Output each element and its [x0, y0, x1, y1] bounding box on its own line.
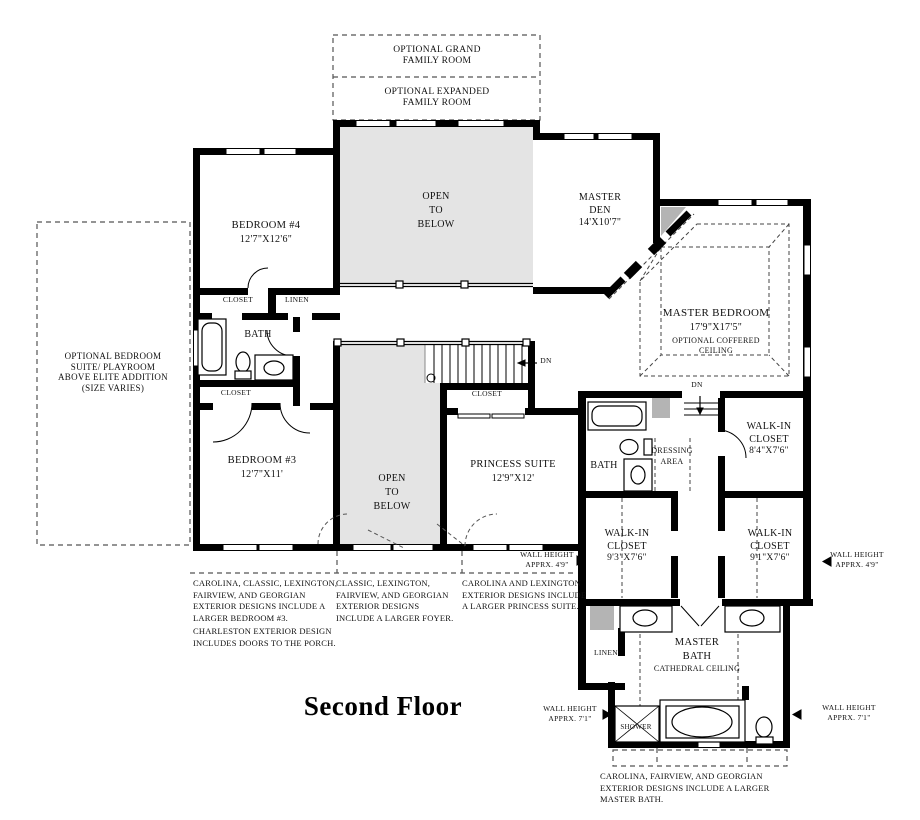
closet-label: CLOSET: [223, 296, 253, 305]
bedroom3-dims: 12'7"X11': [241, 469, 283, 481]
garden-tub-icon: [660, 700, 745, 742]
railing: [337, 284, 533, 345]
walkin-closet-dims: 9'3"X7'6": [607, 553, 647, 564]
hall-bath-label: BATH: [244, 329, 271, 341]
walkin-closet-label: WALK-IN CLOSET: [605, 527, 650, 553]
bedroom4-door-arc: [248, 268, 268, 288]
exterior-design-note: CAROLINA, FAIRVIEW, AND GEORGIAN EXTERIO…: [600, 771, 770, 806]
master-bath-label: MASTER BATH: [675, 636, 719, 664]
railing-posts: [334, 281, 530, 346]
dressing-area-label: DRESSING AREA: [651, 446, 693, 467]
optional-bedroom-suite-label: OPTIONAL BEDROOM SUITE/ PLAYROOM ABOVE E…: [58, 351, 168, 393]
exterior-design-note: CHARLESTON EXTERIOR DESIGN INCLUDES DOOR…: [193, 626, 336, 649]
master-bedroom-label: MASTER BEDROOM: [663, 307, 770, 320]
master-bath-door-leaf: [701, 606, 719, 626]
linen-top-shade: [590, 604, 614, 630]
princess-suite-dims: 12'9"X12': [492, 473, 535, 485]
bedroom3-label: BEDROOM #3: [228, 455, 297, 467]
dn-label: DN: [691, 381, 702, 390]
sink-vanity-icon: [255, 355, 293, 380]
optional-grand-family-room-label: OPTIONAL GRAND FAMILY ROOM: [393, 45, 481, 67]
optional-porch-door-arc: [465, 514, 497, 546]
sink-vanity-icon: [725, 606, 780, 632]
bedroom4-label: BEDROOM #4: [232, 220, 301, 232]
bedroom3-door-arc: [280, 403, 310, 433]
walkin-closet-dims: 8'4"X7'6": [749, 446, 789, 457]
page-title: Second Floor: [304, 691, 462, 722]
wall-height-note: WALL HEIGHT APPRX. 7'1": [543, 704, 597, 724]
bathtub-icon: [198, 319, 226, 375]
sink-vanity-icon: [624, 459, 652, 491]
floor-plan: OPTIONAL GRAND FAMILY ROOM OPTIONAL EXPA…: [0, 0, 920, 820]
walkin-closet-label: WALK-IN CLOSET: [748, 527, 793, 553]
wall-height-note: WALL HEIGHT APPRX. 4'9": [830, 550, 884, 570]
optional-master-bath-outline: [613, 750, 787, 766]
bedroom4-dims: 12'7"X12'6": [240, 234, 292, 246]
exterior-design-note: CAROLINA AND LEXINGTON EXTERIOR DESIGNS …: [462, 578, 586, 613]
toilet-icon: [620, 439, 652, 455]
walkin-closet-dims: 9'1"X7'6": [750, 553, 790, 564]
wall-height-note: WALL HEIGHT APPRX. 7'1": [822, 703, 876, 723]
princess-double-door: [492, 414, 524, 418]
master-bath-door-leaf: [681, 606, 699, 626]
walkin-closet-label: WALK-IN CLOSET: [747, 420, 792, 446]
bathtub-icon: [588, 402, 646, 430]
optional-expanded-family-room-label: OPTIONAL EXPANDED FAMILY ROOM: [385, 87, 490, 109]
master-hall-bath-label: BATH: [590, 460, 617, 472]
shower-label: SHOWER: [620, 723, 651, 731]
closet-door-arc: [213, 403, 252, 442]
open-to-below-upper-label: OPEN TO BELOW: [417, 190, 454, 232]
closet-label: CLOSET: [221, 389, 251, 398]
princess-double-door: [458, 414, 490, 418]
exterior-design-note: CLASSIC, LEXINGTON, FAIRVIEW, AND GEORGI…: [336, 578, 453, 624]
linen-label: LINEN: [285, 296, 309, 305]
master-bedroom-dims: 17'9"X17'5": [690, 322, 742, 334]
master-den-label: MASTER DEN: [579, 191, 621, 217]
dn-label: DN: [540, 357, 551, 366]
toilet-icon: [235, 352, 251, 379]
master-bath-ceiling-label: CATHEDRAL CEILING: [654, 664, 740, 673]
exterior-design-note: CAROLINA, CLASSIC, LEXINGTON, FAIRVIEW, …: [193, 578, 337, 624]
walkin-closet-door-arc: [718, 430, 746, 458]
wall-height-note: WALL HEIGHT APPRX. 4'9": [520, 550, 574, 570]
master-bedroom-option-label: OPTIONAL COFFERED CEILING: [672, 336, 760, 356]
toilet-icon: [756, 717, 773, 744]
wall-height-arrow-icon: [793, 710, 801, 719]
sink-vanity-icon: [620, 606, 672, 632]
closet-label: CLOSET: [472, 390, 502, 399]
linen-label: LINEN: [594, 649, 618, 658]
open-to-below-lower-label: OPEN TO BELOW: [373, 472, 410, 514]
door-slab: [627, 264, 639, 276]
master-den-dims: 14'X10'7": [579, 217, 622, 229]
princess-suite-label: PRINCESS SUITE: [470, 459, 556, 471]
dn-arrow-icon: [697, 408, 703, 414]
dressing-entry-shade: [652, 398, 670, 418]
